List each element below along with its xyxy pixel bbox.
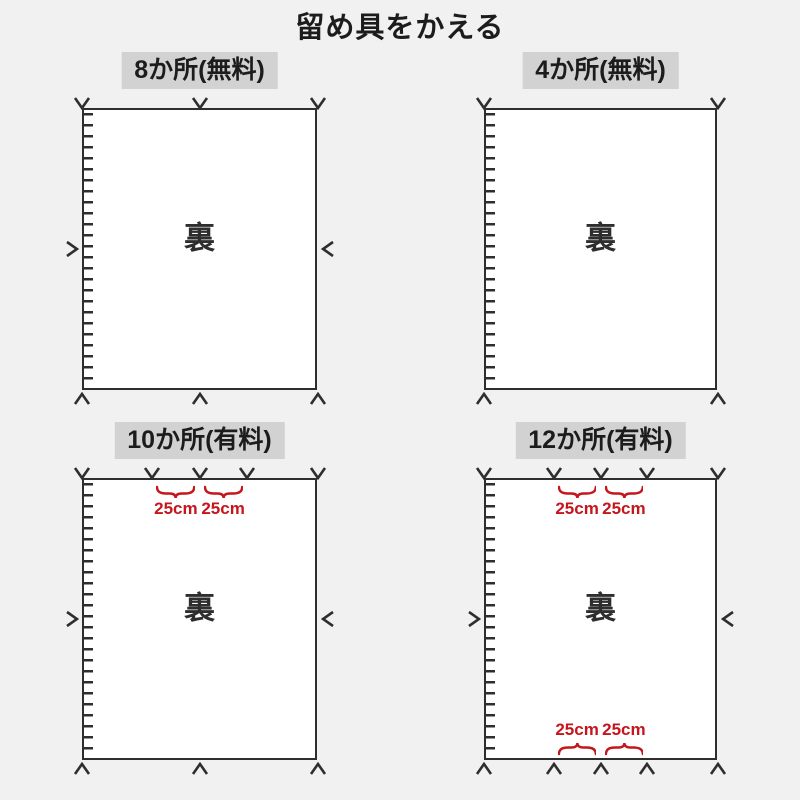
measure-label: 25cm	[602, 720, 645, 740]
fastener-mark-top-icon	[545, 465, 563, 480]
back-side-label: 裏	[585, 582, 616, 627]
stitched-edge	[84, 483, 93, 756]
back-side-label: 裏	[184, 582, 215, 627]
option-label: 12か所(有料)	[515, 422, 685, 459]
fastener-mark-bottom-icon	[475, 762, 493, 777]
stitched-edge	[486, 113, 495, 386]
back-side-label: 裏	[585, 212, 616, 257]
fastener-mark-bottom-icon	[191, 762, 209, 777]
fastener-mark-top-icon	[638, 465, 656, 480]
fastener-mark-top-icon	[73, 95, 91, 110]
option-label: 4か所(無料)	[522, 52, 679, 89]
fastener-options-infographic: 留め具をかえる 8か所(無料) 裏 4か所(無料) 裏 10か所(有料) 裏 2…	[0, 0, 800, 800]
fastener-mark-top-icon	[143, 465, 161, 480]
panel-4-spots-free: 4か所(無料) 裏	[484, 108, 717, 390]
option-label: 10か所(有料)	[114, 422, 284, 459]
fastener-mark-bottom-icon	[309, 762, 327, 777]
fabric-back-rect: 裏 25cm25cm25cm25cm	[484, 478, 718, 761]
fastener-mark-right-icon	[321, 240, 336, 258]
fastener-mark-left-icon	[64, 240, 79, 258]
fastener-mark-bottom-icon	[709, 762, 727, 777]
fastener-mark-top-icon	[191, 465, 209, 480]
fastener-mark-left-icon	[466, 610, 481, 628]
measure-brace-icon	[156, 485, 195, 499]
measure-label: 25cm	[555, 720, 598, 740]
fastener-mark-bottom-icon	[592, 762, 610, 777]
measure-brace-icon	[605, 742, 644, 756]
fastener-mark-top-icon	[709, 465, 727, 480]
fastener-mark-top-icon	[592, 465, 610, 480]
fastener-mark-bottom-icon	[475, 392, 493, 407]
fastener-mark-right-icon	[721, 610, 736, 628]
measure-label: 25cm	[555, 499, 598, 519]
fastener-mark-top-icon	[191, 95, 209, 110]
fabric-back-rect: 裏	[484, 108, 718, 391]
measure-brace-icon	[558, 485, 597, 499]
fastener-mark-bottom-icon	[73, 392, 91, 407]
fastener-mark-top-icon	[475, 95, 493, 110]
fastener-mark-bottom-icon	[309, 392, 327, 407]
panel-12-spots-paid: 12か所(有料) 裏 25cm25cm25cm25cm	[484, 478, 717, 760]
fastener-mark-right-icon	[321, 610, 336, 628]
fastener-mark-top-icon	[475, 465, 493, 480]
fastener-mark-bottom-icon	[545, 762, 563, 777]
fastener-mark-top-icon	[238, 465, 256, 480]
fabric-back-rect: 裏	[82, 108, 318, 391]
page-title: 留め具をかえる	[0, 4, 800, 46]
fastener-mark-top-icon	[309, 95, 327, 110]
measure-brace-icon	[605, 485, 644, 499]
panel-10-spots-paid: 10か所(有料) 裏 25cm25cm	[82, 478, 317, 760]
fastener-mark-bottom-icon	[191, 392, 209, 407]
fastener-mark-bottom-icon	[638, 762, 656, 777]
fastener-mark-top-icon	[309, 465, 327, 480]
fastener-mark-bottom-icon	[73, 762, 91, 777]
measure-label: 25cm	[201, 499, 244, 519]
fabric-back-rect: 裏 25cm25cm	[82, 478, 318, 761]
measure-label: 25cm	[154, 499, 197, 519]
fastener-mark-left-icon	[64, 610, 79, 628]
stitched-edge	[486, 483, 495, 756]
fastener-mark-top-icon	[709, 95, 727, 110]
panel-8-spots-free: 8か所(無料) 裏	[82, 108, 317, 390]
fastener-mark-bottom-icon	[709, 392, 727, 407]
measure-brace-icon	[558, 742, 597, 756]
measure-label: 25cm	[602, 499, 645, 519]
fastener-mark-top-icon	[73, 465, 91, 480]
stitched-edge	[84, 113, 93, 386]
back-side-label: 裏	[184, 212, 215, 257]
measure-brace-icon	[204, 485, 243, 499]
option-label: 8か所(無料)	[121, 52, 278, 89]
